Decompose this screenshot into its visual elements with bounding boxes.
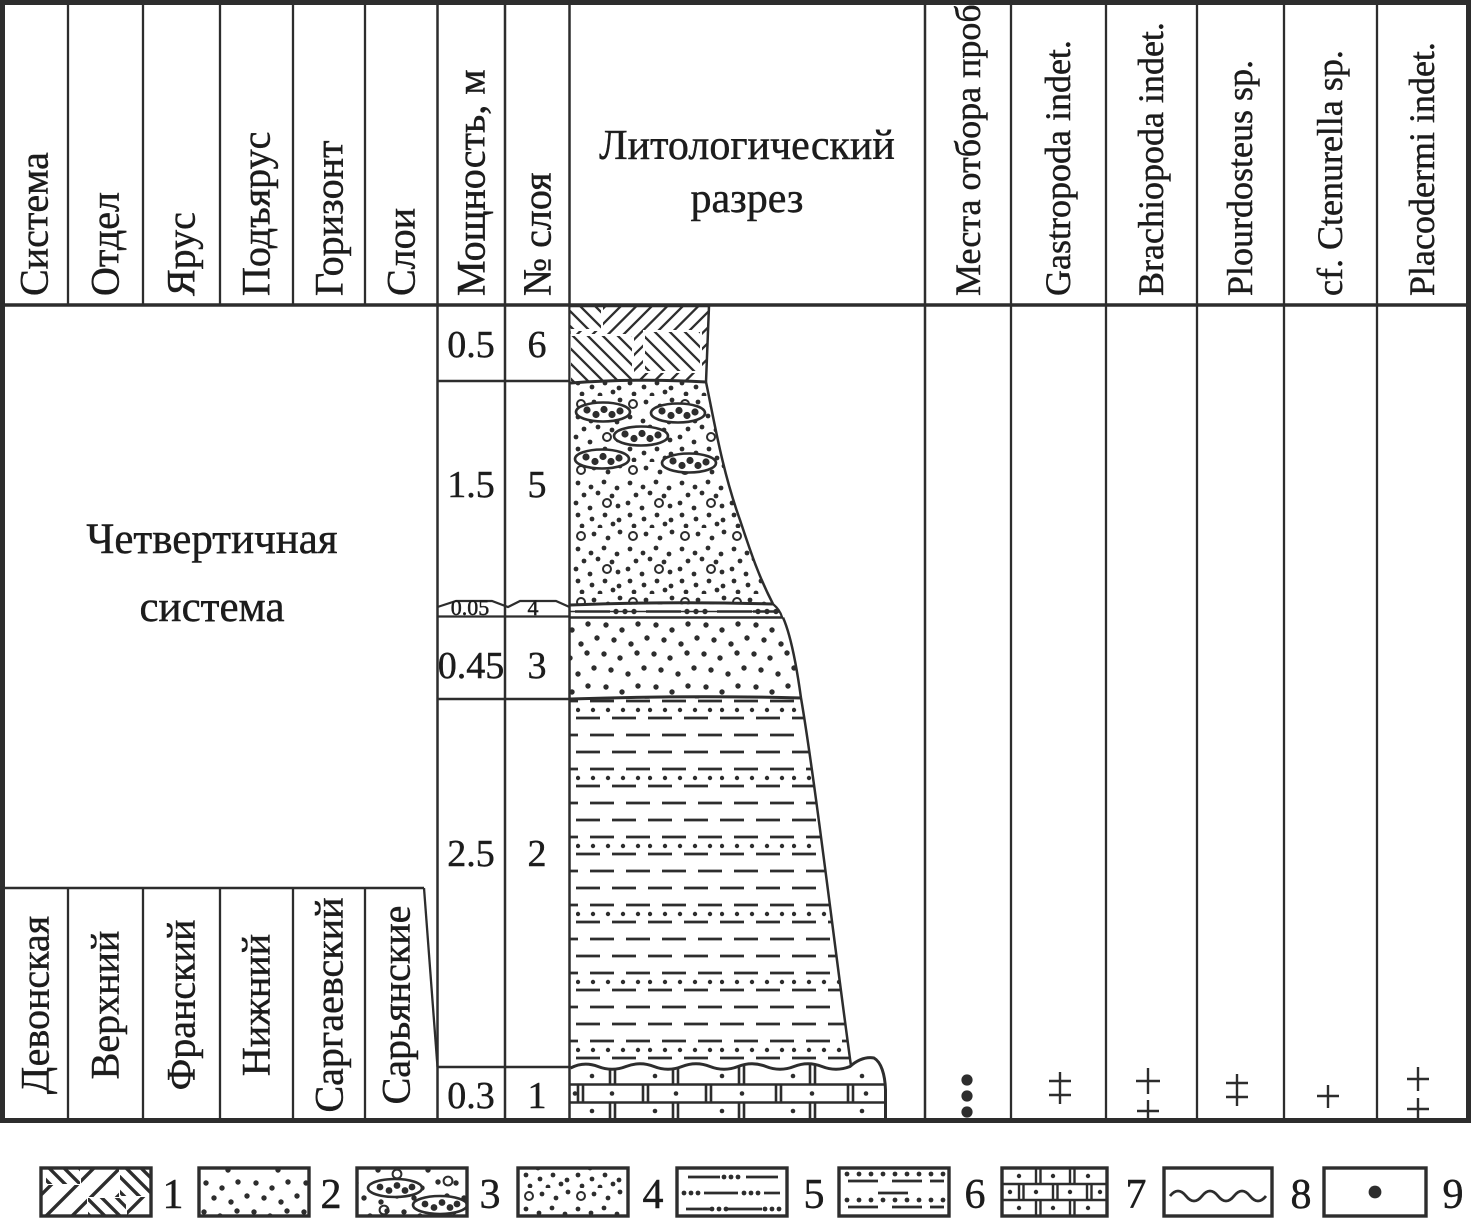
svg-text:Plourdosteus sp.: Plourdosteus sp. — [1220, 60, 1260, 296]
svg-text:0.45: 0.45 — [438, 645, 505, 687]
svg-text:Франский: Франский — [159, 920, 204, 1091]
svg-text:5: 5 — [804, 1172, 825, 1218]
svg-text:0.5: 0.5 — [447, 324, 495, 366]
svg-text:1: 1 — [163, 1172, 184, 1218]
svg-text:cf. Ctenurella sp.: cf. Ctenurella sp. — [1310, 50, 1350, 296]
svg-text:7: 7 — [1126, 1172, 1147, 1218]
svg-text:6: 6 — [965, 1172, 986, 1218]
svg-text:Gastropoda indet.: Gastropoda indet. — [1038, 40, 1078, 296]
svg-text:0.05: 0.05 — [451, 595, 490, 620]
svg-text:4: 4 — [643, 1172, 664, 1218]
svg-text:3: 3 — [528, 645, 547, 687]
svg-text:2.5: 2.5 — [447, 833, 495, 875]
svg-text:3: 3 — [480, 1172, 501, 1218]
svg-text:Ярус: Ярус — [159, 212, 204, 296]
svg-text:Система: Система — [12, 152, 57, 296]
svg-text:2: 2 — [321, 1172, 342, 1218]
svg-text:4: 4 — [528, 595, 539, 620]
svg-text:Литологический: Литологический — [599, 123, 895, 169]
svg-text:0.3: 0.3 — [447, 1075, 495, 1117]
svg-text:Горизонт: Горизонт — [307, 141, 352, 296]
svg-text:Саргаевский: Саргаевский — [307, 898, 352, 1113]
svg-text:Четвертичная: Четвертичная — [86, 516, 337, 563]
svg-text:1: 1 — [528, 1075, 547, 1117]
svg-text:Brachiopoda indet.: Brachiopoda indet. — [1131, 22, 1171, 296]
svg-text:Подъярус: Подъярус — [234, 132, 279, 296]
svg-text:Верхний: Верхний — [83, 931, 128, 1080]
svg-text:5: 5 — [528, 464, 547, 506]
svg-text:Нижний: Нижний — [234, 934, 279, 1076]
svg-text:2: 2 — [528, 833, 547, 875]
svg-text:система: система — [139, 584, 284, 631]
svg-text:9: 9 — [1443, 1172, 1464, 1218]
svg-text:разрез: разрез — [691, 176, 804, 222]
svg-text:Места отбора проб: Места отбора проб — [948, 4, 988, 296]
svg-text:Мощность, м: Мощность, м — [449, 69, 494, 296]
svg-text:Слои: Слои — [379, 208, 424, 296]
svg-text:6: 6 — [528, 324, 547, 366]
svg-text:8: 8 — [1291, 1172, 1312, 1218]
svg-text:№ слоя: № слоя — [515, 172, 560, 296]
svg-text:1.5: 1.5 — [447, 464, 495, 506]
svg-text:Сарьянские: Сарьянские — [374, 906, 419, 1105]
svg-text:Placodermi indet.: Placodermi indet. — [1402, 42, 1442, 296]
svg-text:Девонская: Девонская — [13, 916, 58, 1094]
svg-text:Отдел: Отдел — [83, 192, 128, 296]
